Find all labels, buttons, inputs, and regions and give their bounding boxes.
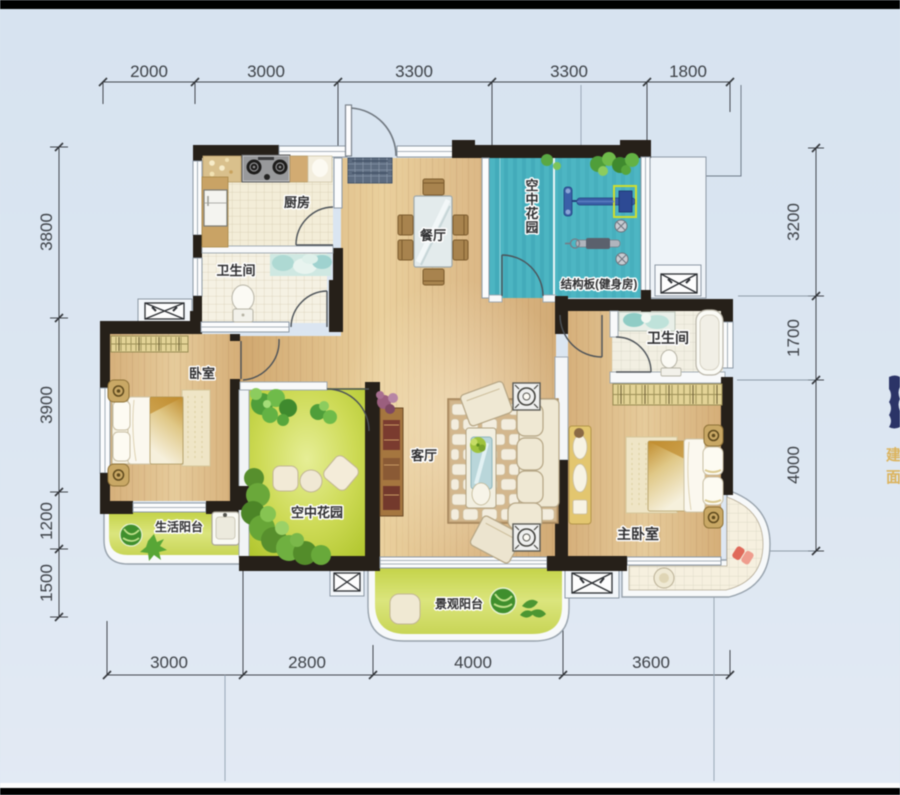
svg-text:餐厅: 餐厅 xyxy=(419,228,446,243)
svg-text:3800: 3800 xyxy=(37,213,56,251)
svg-text:1700: 1700 xyxy=(784,319,803,357)
svg-text:卫生间: 卫生间 xyxy=(647,330,689,346)
svg-text:卧室: 卧室 xyxy=(189,366,215,381)
svg-text:3300: 3300 xyxy=(395,62,433,81)
svg-text:2800: 2800 xyxy=(288,653,326,672)
svg-text:主卧室: 主卧室 xyxy=(617,526,659,542)
svg-text:生活阳台: 生活阳台 xyxy=(155,519,203,534)
svg-text:3000: 3000 xyxy=(247,62,285,81)
svg-text:结构板(健身房): 结构板(健身房) xyxy=(560,277,638,291)
svg-text:3000: 3000 xyxy=(150,653,188,672)
svg-text:景观阳台: 景观阳台 xyxy=(435,596,483,611)
svg-text:建筑: 建筑 xyxy=(886,446,900,464)
svg-text:4000: 4000 xyxy=(454,653,492,672)
svg-text:卫生间: 卫生间 xyxy=(216,263,255,278)
svg-text:1800: 1800 xyxy=(669,62,707,81)
svg-text:1200: 1200 xyxy=(37,502,56,540)
svg-text:空中花园: 空中花园 xyxy=(291,505,343,520)
svg-text:3200: 3200 xyxy=(784,203,803,241)
svg-text:2000: 2000 xyxy=(130,62,168,81)
svg-text:3600: 3600 xyxy=(632,653,670,672)
svg-text:4000: 4000 xyxy=(784,446,803,484)
svg-text:厨房: 厨房 xyxy=(284,195,310,210)
svg-text:空中花园: 空中花园 xyxy=(525,178,538,235)
svg-text:面积: 面积 xyxy=(886,468,900,486)
svg-text:3300: 3300 xyxy=(550,62,588,81)
svg-text:3900: 3900 xyxy=(37,386,56,424)
svg-text:客厅: 客厅 xyxy=(411,448,437,463)
svg-text:1500: 1500 xyxy=(37,564,56,602)
